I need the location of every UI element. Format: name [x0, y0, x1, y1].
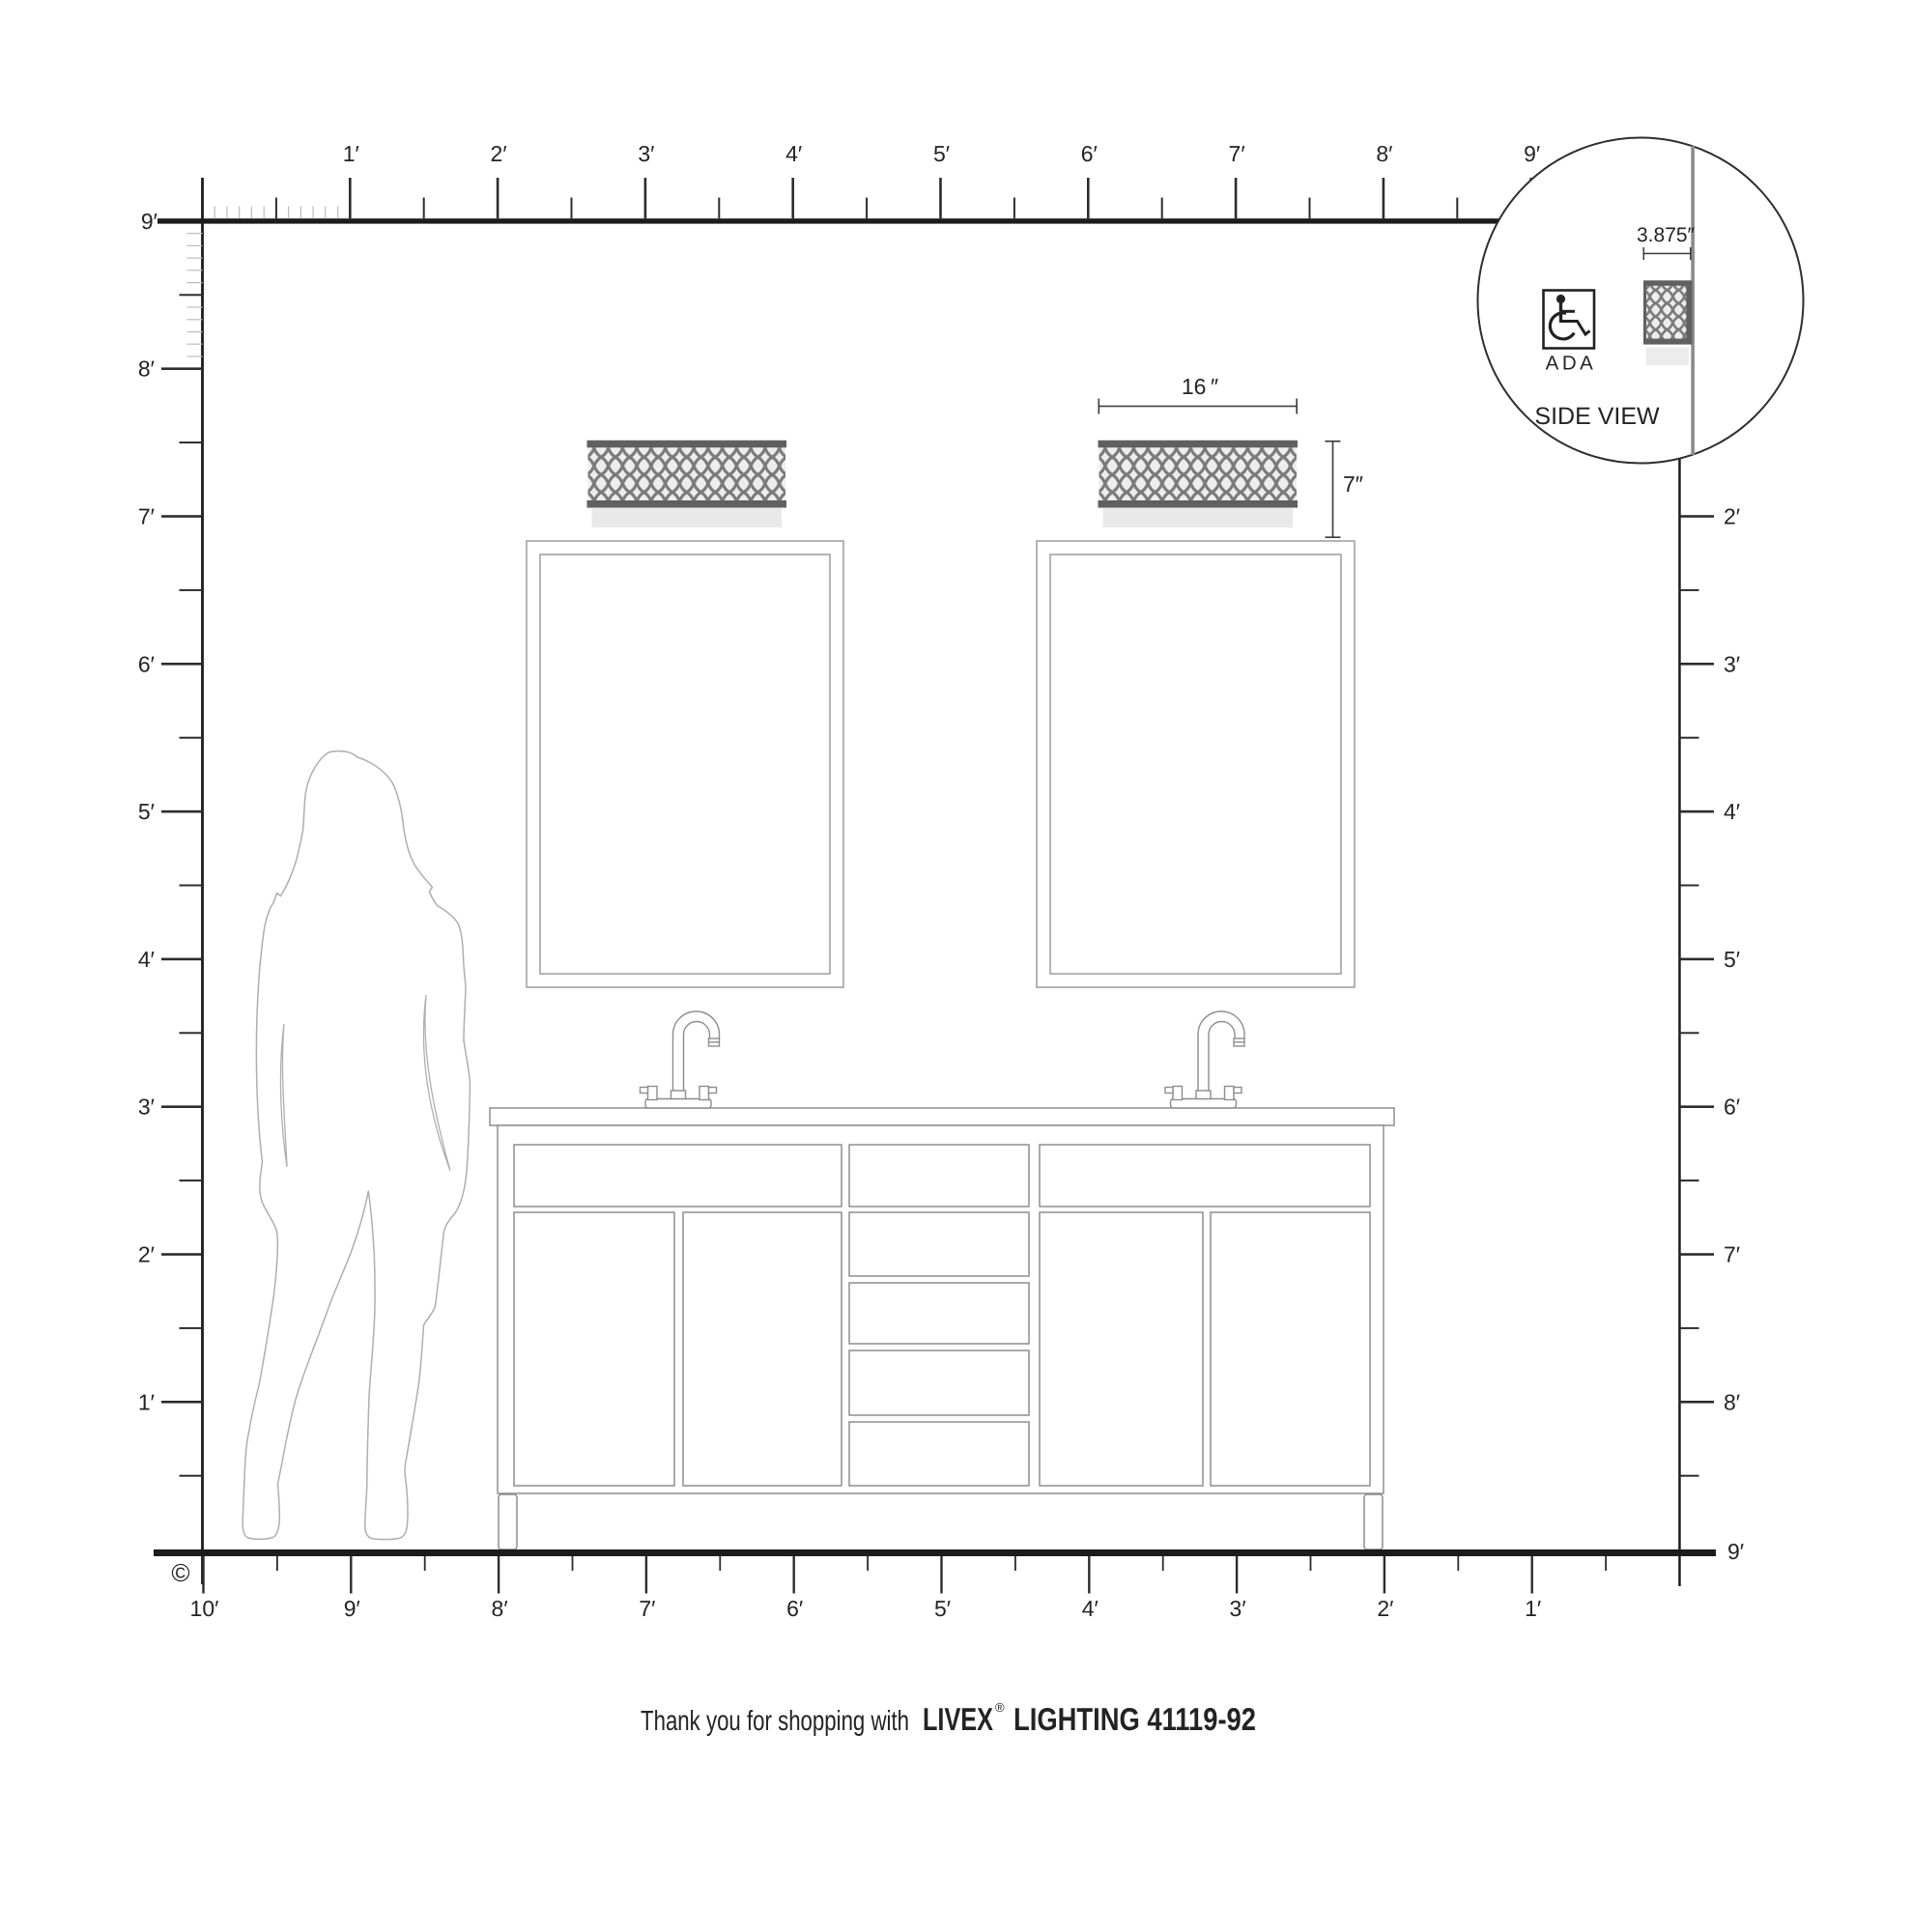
svg-text:5′: 5′ [933, 141, 950, 166]
svg-text:4′: 4′ [1724, 799, 1740, 824]
svg-text:SIDE VIEW: SIDE VIEW [1534, 403, 1660, 430]
svg-text:9′: 9′ [344, 1596, 360, 1621]
svg-text:7′: 7′ [1229, 141, 1245, 166]
svg-text:2′: 2′ [1724, 504, 1740, 529]
svg-text:7″: 7″ [1343, 471, 1363, 497]
svg-text:8′: 8′ [1724, 1389, 1740, 1414]
svg-text:10′: 10′ [190, 1596, 219, 1621]
svg-text:6′: 6′ [1724, 1094, 1740, 1120]
svg-text:8′: 8′ [138, 356, 155, 382]
svg-text:ADA: ADA [1546, 353, 1597, 375]
svg-text:LIGHTING 41119-92: LIGHTING 41119-92 [1013, 1701, 1256, 1737]
svg-text:4′: 4′ [785, 141, 802, 166]
svg-text:6′: 6′ [1081, 141, 1098, 166]
svg-text:1′: 1′ [138, 1389, 155, 1414]
svg-text:5′: 5′ [138, 799, 155, 824]
svg-text:2′: 2′ [138, 1242, 155, 1267]
svg-text:3.875″: 3.875″ [1637, 224, 1696, 246]
svg-text:1′: 1′ [343, 141, 359, 166]
svg-text:5′: 5′ [934, 1596, 951, 1621]
svg-text:9′: 9′ [1524, 141, 1540, 166]
svg-text:Thank you for shopping with: Thank you for shopping with [641, 1706, 909, 1737]
svg-text:®: ® [995, 1700, 1005, 1715]
svg-text:8′: 8′ [1376, 141, 1392, 166]
svg-text:9′: 9′ [141, 209, 157, 234]
svg-text:7′: 7′ [138, 504, 155, 529]
svg-text:3′: 3′ [1230, 1596, 1246, 1621]
svg-text:8′: 8′ [492, 1596, 508, 1621]
svg-text:4′: 4′ [1082, 1596, 1099, 1621]
svg-text:3′: 3′ [638, 141, 654, 166]
svg-text:6′: 6′ [138, 651, 155, 676]
svg-text:LIVEX: LIVEX [923, 1701, 993, 1737]
svg-text:2′: 2′ [491, 141, 507, 166]
svg-text:1′: 1′ [1525, 1596, 1541, 1621]
svg-text:©: © [171, 1558, 189, 1587]
svg-text:7′: 7′ [639, 1596, 655, 1621]
svg-text:4′: 4′ [138, 947, 155, 972]
svg-text:3′: 3′ [138, 1094, 155, 1120]
svg-text:3′: 3′ [1724, 651, 1740, 676]
svg-text:9′: 9′ [1727, 1539, 1744, 1564]
svg-text:6′: 6′ [786, 1596, 803, 1621]
svg-text:16 ″: 16 ″ [1182, 374, 1218, 399]
svg-text:5′: 5′ [1724, 947, 1740, 972]
svg-text:7′: 7′ [1724, 1242, 1740, 1267]
svg-text:2′: 2′ [1377, 1596, 1393, 1621]
